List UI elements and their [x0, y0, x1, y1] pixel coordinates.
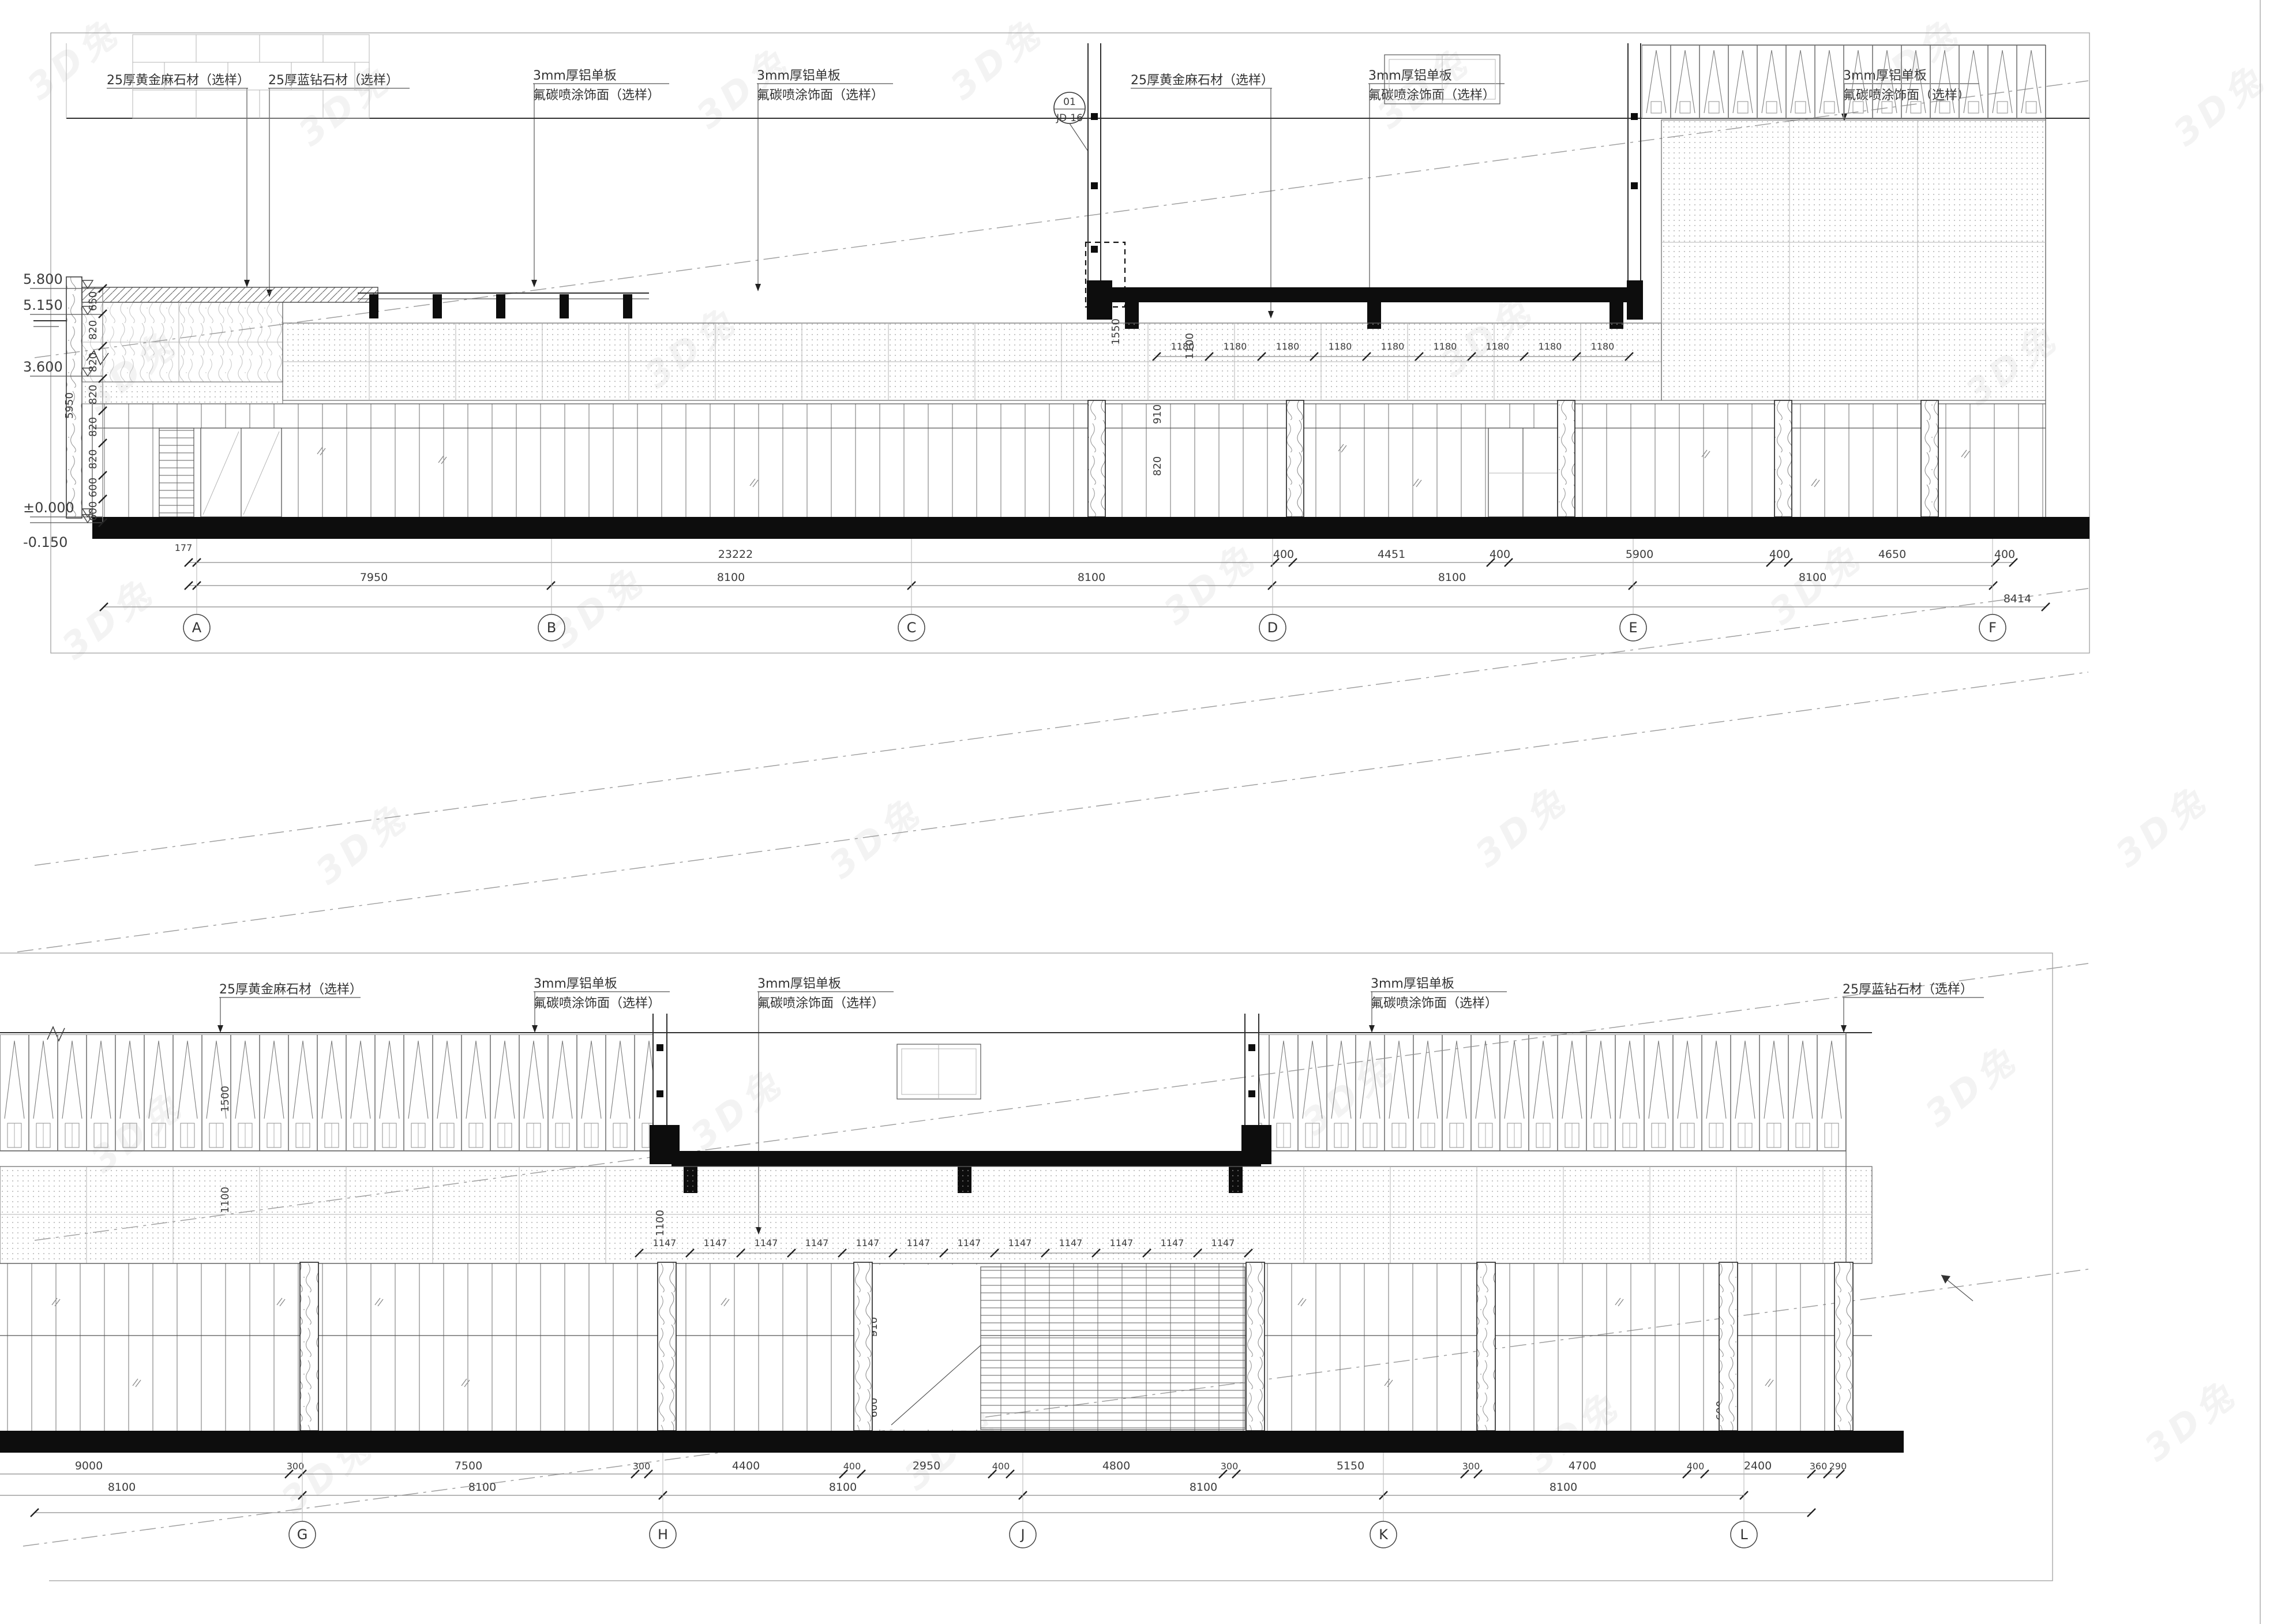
annotation-text: 氟碳喷涂饰面（选样）: [533, 88, 660, 103]
dim-label: 9000: [75, 1460, 103, 1472]
dim-label: 1147: [755, 1237, 778, 1248]
dim-label: 8414: [2004, 592, 2031, 605]
dim-label: 400: [1490, 548, 1510, 561]
watermark: 3D兔: [1917, 1038, 2025, 1135]
grid-label: D: [1267, 620, 1278, 636]
dim-label: 5900: [1626, 548, 1653, 561]
level-label: 3.600: [23, 359, 63, 375]
dim-label: 7500: [455, 1460, 482, 1472]
canopy-beam-section: [1096, 287, 1642, 329]
grid-label: H: [658, 1527, 668, 1543]
material-annotation-stone-gold-mid: 25厚黄金麻石材（选样）: [1131, 73, 1274, 318]
material-annotation-stone-gold-b: 25厚黄金麻石材（选样）: [217, 982, 362, 1033]
level-label: -0.150: [23, 534, 67, 550]
dim-label: 820: [87, 385, 99, 404]
dim-label: 1180: [1434, 341, 1457, 352]
dim-label: 1147: [958, 1237, 981, 1248]
dim-label: 1147: [1161, 1237, 1184, 1248]
stone-veneer-panel-left: [82, 302, 283, 404]
grid-label: L: [1740, 1527, 1748, 1543]
dim-label: 1180: [1381, 341, 1405, 352]
grid-label: C: [907, 620, 917, 636]
dim-label: 650: [87, 291, 99, 311]
annotation-text: 25厚黄金麻石材（选样）: [107, 73, 250, 88]
dim-label: 8100: [108, 1481, 136, 1494]
level-label: 5.150: [23, 297, 63, 313]
dim-label: 1550: [1110, 318, 1122, 345]
watermark: 3D兔: [307, 796, 415, 893]
annotation-text: 氟碳喷涂饰面（选样）: [1368, 88, 1495, 103]
annotation-text: 25厚黄金麻石材（选样）: [219, 982, 362, 997]
section-window-upper-b: [897, 1044, 981, 1099]
louver-vent: [159, 428, 194, 517]
dim-label: 8100: [468, 1481, 496, 1494]
annotation-text: 3mm厚铝单板: [757, 977, 841, 991]
dim-label: 8100: [829, 1481, 857, 1494]
dim-label: 360: [1810, 1461, 1828, 1472]
dim-label: 8100: [1799, 571, 1826, 584]
level-label: ±0.000: [23, 500, 74, 516]
dim-label: 4700: [1569, 1460, 1596, 1472]
dim-label: 4650: [1878, 548, 1906, 561]
watermark: 3D兔: [19, 11, 127, 108]
annotation-text: 25厚黄金麻石材（选样）: [1131, 73, 1274, 88]
section-wall-2: [1627, 43, 1643, 320]
material-annotation-aluminium-3: 3mm厚铝单板 氟碳喷涂饰面（选样）: [1367, 69, 1505, 295]
dim-label: 1147: [805, 1237, 829, 1248]
pergola-canopy-left: [358, 293, 649, 318]
drawing-sheet: 3D兔 3D兔 3D兔 3D兔 3D兔 3D兔 3D兔 3D兔 3D兔 3D兔 …: [0, 0, 2296, 1624]
dim-label: 1180: [1486, 341, 1510, 352]
grid-label: K: [1379, 1527, 1389, 1543]
detail-number: 01: [1063, 96, 1076, 108]
grid-label: A: [192, 620, 202, 636]
entrance-door-mid: [1488, 428, 1558, 517]
dim-label: 5150: [1337, 1460, 1364, 1472]
annotation-text: 25厚蓝钻石材（选样）: [1843, 982, 1973, 997]
dim-label: 1147: [907, 1237, 931, 1248]
dim-label: 400: [992, 1461, 1010, 1472]
louver-screen-band-left: [0, 1034, 653, 1151]
dim-label: 23222: [718, 548, 753, 561]
material-annotation-aluminium-1: 3mm厚铝单板 氟碳喷涂饰面（选样）: [531, 69, 669, 287]
dim-label: 400: [1769, 548, 1790, 561]
dimension-row-2-b: 8100 8100 8100 8100 8100: [0, 1481, 1748, 1499]
dim-label: 2400: [1744, 1460, 1772, 1472]
dim-label: 2950: [913, 1460, 940, 1472]
ground-beam: [92, 517, 2089, 539]
dim-label-total: 5950: [63, 392, 76, 419]
dim-label: 600: [87, 501, 99, 521]
dim-label: 1180: [1329, 341, 1352, 352]
annotation-text: 3mm厚铝单板: [1371, 977, 1454, 991]
stone-frieze-band: [283, 323, 1661, 400]
dim-label: 4451: [1378, 548, 1405, 561]
dim-label: 4400: [732, 1460, 760, 1472]
dim-label: 400: [1273, 548, 1294, 561]
dim-label: 400: [1994, 548, 2015, 561]
dim-label: 1100: [219, 1187, 231, 1213]
watermark: 3D兔: [1155, 536, 1263, 633]
watermark: 3D兔: [2107, 778, 2215, 876]
dim-label: 820: [87, 449, 99, 469]
stone-frieze-band-b: [0, 1167, 1872, 1263]
grid-label: E: [1629, 620, 1637, 636]
dim-label: 1180: [1276, 341, 1300, 352]
material-annotation-stone-blue-b: 25厚蓝钻石材（选样）: [1841, 982, 1984, 1033]
dimension-row-1: 177 23222 400 4451 400 5900 400 4650 400: [175, 542, 2017, 567]
storefront-glazing-b: [0, 1263, 1872, 1431]
dim-label: 4800: [1102, 1460, 1130, 1472]
grid-label: J: [1019, 1527, 1025, 1543]
section-cut-arrow-right: [1941, 1275, 1973, 1301]
watermark: 3D兔: [1467, 778, 1575, 876]
dim-label: 177: [175, 542, 193, 553]
open-bay: [877, 1265, 981, 1430]
dim-label: 1500: [219, 1086, 231, 1112]
dim-label: 400: [843, 1461, 861, 1472]
dim-label: 820: [87, 417, 99, 437]
dim-label: 1147: [1008, 1237, 1032, 1248]
ground-beam-b: [0, 1431, 1904, 1453]
dimension-row-2: 7950 8100 8100 8100 8100: [185, 571, 1997, 590]
material-annotation-stone-gold-left: 25厚黄金麻石材（选样）: [107, 73, 250, 287]
dim-label: 300: [287, 1461, 305, 1472]
dim-label: 820: [87, 320, 99, 340]
material-annotation-aluminium-b3: 3mm厚铝单板 氟碳喷涂饰面（选样）: [1369, 977, 1507, 1033]
annotation-text: 3mm厚铝单板: [533, 69, 617, 83]
watermark: 3D兔: [2136, 1372, 2244, 1470]
detail-callout-bubble: 01 JD-16: [1054, 92, 1125, 307]
dim-label: 1100: [1184, 333, 1196, 359]
dim-label: 1180: [1591, 341, 1615, 352]
level-label: 5.800: [23, 271, 63, 287]
dim-label: 290: [1829, 1461, 1847, 1472]
coping-hatched-band: [82, 287, 378, 302]
dim-label: 1180: [1224, 341, 1247, 352]
annotation-text: 氟碳喷涂饰面（选样）: [534, 996, 661, 1011]
dim-label: 300: [1462, 1461, 1480, 1472]
annotation-text: 氟碳喷涂饰面（选样）: [757, 88, 884, 103]
dim-label: 1180: [1539, 341, 1562, 352]
dim-label: 1147: [1059, 1237, 1083, 1248]
section-wall-1: [1087, 43, 1112, 320]
entrance-door-left: [201, 428, 282, 517]
grid-label: G: [297, 1527, 308, 1543]
dim-label: 8100: [1190, 1481, 1217, 1494]
dim-label: 1147: [704, 1237, 727, 1248]
bottom-elevation-drawing: 25厚黄金麻石材（选样） 3mm厚铝单板 氟碳喷涂饰面（选样） 3mm厚铝单板 …: [0, 977, 1984, 1548]
dim-label: 1147: [1211, 1237, 1235, 1248]
annotation-text: 3mm厚铝单板: [534, 977, 617, 991]
watermark: 3D兔: [290, 57, 398, 155]
annotation-text: 3mm厚铝单板: [757, 69, 841, 83]
dim-label: 8100: [1550, 1481, 1577, 1494]
annotation-text: 氟碳喷涂饰面（选样）: [1371, 996, 1498, 1011]
annotation-text: 3mm厚铝单板: [1368, 69, 1452, 83]
dim-label: 8100: [717, 571, 745, 584]
stone-frieze-band-right: [1661, 120, 2046, 400]
watermark: 3D兔: [2165, 57, 2273, 155]
annotation-text: 25厚蓝钻石材（选样）: [268, 73, 399, 88]
dim-label: 7950: [360, 571, 388, 584]
dim-label: 600: [87, 478, 99, 497]
dim-label: 300: [1221, 1461, 1239, 1472]
grid-label: B: [547, 620, 556, 636]
grid-label: F: [1989, 620, 1997, 636]
dim-label: 1147: [1110, 1237, 1134, 1248]
material-annotation-aluminium-b1: 3mm厚铝单板 氟碳喷涂饰面（选样）: [532, 977, 670, 1033]
dim-label: 300: [633, 1461, 651, 1472]
dim-label: 8100: [1438, 571, 1466, 584]
watermark: 3D兔: [821, 790, 929, 887]
watermark: 3D兔: [544, 559, 652, 657]
dim-label: 1147: [653, 1237, 677, 1248]
roller-shutter: [981, 1267, 1245, 1430]
dim-label: 1100: [654, 1210, 666, 1236]
dim-label: 1147: [856, 1237, 880, 1248]
grid-bubbles-top: A B C D E F: [183, 539, 2006, 641]
section-wall-b1: [650, 1014, 680, 1164]
dimension-row-3: 8414: [100, 592, 2050, 611]
dim-label: 400: [1687, 1461, 1705, 1472]
storefront-glazing: [92, 404, 2046, 517]
watermark: 3D兔: [942, 11, 1050, 108]
watermark: 3D兔: [682, 1061, 790, 1158]
annotation-text: 氟碳喷涂饰面（选样）: [757, 996, 884, 1011]
dim-label: 8100: [1078, 571, 1105, 584]
dim-label: 820: [87, 352, 99, 372]
